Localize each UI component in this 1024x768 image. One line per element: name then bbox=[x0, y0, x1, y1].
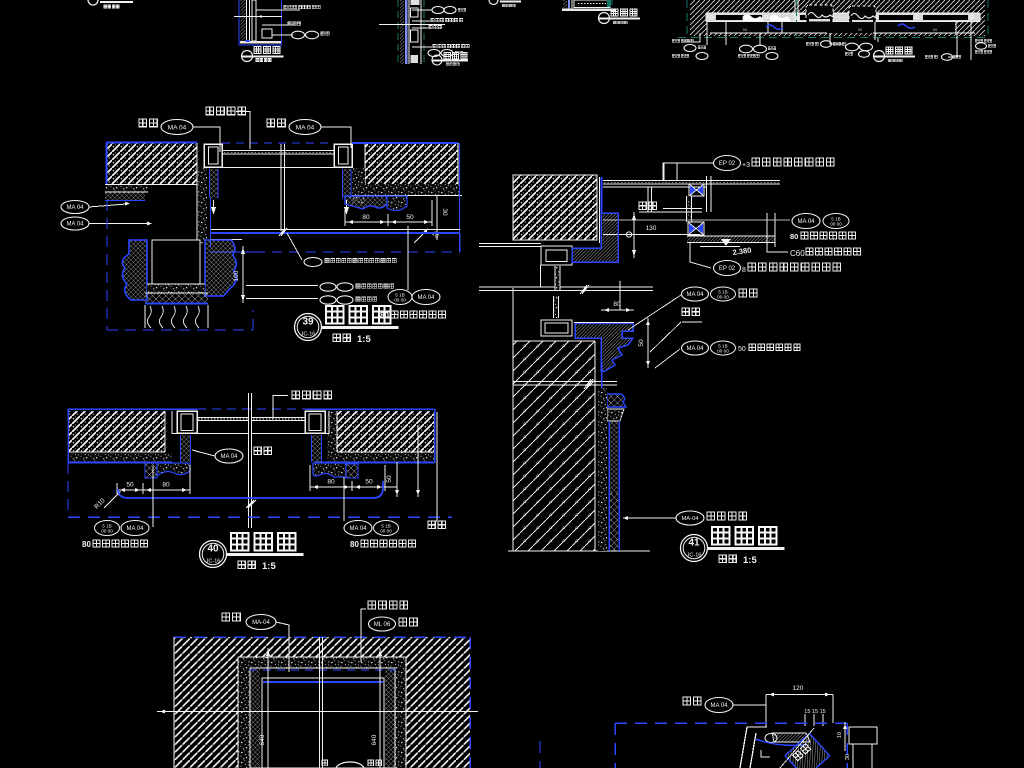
svg-text:MA 04: MA 04 bbox=[710, 703, 728, 709]
svg-text:00 00: 00 00 bbox=[717, 349, 729, 354]
svg-text:MA 04: MA 04 bbox=[66, 205, 84, 211]
svg-text:1:5: 1:5 bbox=[357, 334, 371, 345]
svg-text:00 00: 00 00 bbox=[830, 222, 842, 227]
svg-text:1:5: 1:5 bbox=[743, 555, 757, 566]
svg-text:80: 80 bbox=[790, 232, 798, 241]
svg-text:EP 02: EP 02 bbox=[719, 266, 736, 272]
svg-text:8: 8 bbox=[742, 267, 746, 274]
svg-text:50: 50 bbox=[933, 27, 938, 32]
svg-text:C60: C60 bbox=[790, 249, 805, 258]
svg-text:MA 04: MA 04 bbox=[686, 346, 704, 352]
svg-text:00 00: 00 00 bbox=[101, 529, 113, 534]
svg-text:50: 50 bbox=[365, 479, 373, 486]
svg-text:EP 02: EP 02 bbox=[719, 161, 736, 167]
svg-text:JC-16: JC-16 bbox=[206, 559, 221, 565]
svg-text:MA 04: MA 04 bbox=[168, 124, 187, 131]
svg-text:MA 04: MA 04 bbox=[126, 526, 144, 532]
svg-text:MA-04: MA-04 bbox=[681, 516, 699, 522]
svg-text:30: 30 bbox=[845, 754, 851, 760]
svg-text:80: 80 bbox=[362, 214, 370, 221]
svg-text:120: 120 bbox=[793, 685, 804, 692]
svg-text:MA 04: MA 04 bbox=[349, 526, 367, 532]
svg-text:640: 640 bbox=[371, 734, 378, 745]
svg-text:640: 640 bbox=[259, 734, 266, 745]
svg-text:50: 50 bbox=[858, 27, 863, 32]
svg-text:00 00: 00 00 bbox=[380, 529, 392, 534]
svg-text:JC-16: JC-16 bbox=[687, 553, 702, 559]
svg-text:00 00: 00 00 bbox=[394, 298, 406, 303]
svg-text:MA 04: MA 04 bbox=[66, 222, 84, 228]
svg-text:1:5: 1:5 bbox=[262, 561, 276, 572]
svg-text:ML 06: ML 06 bbox=[374, 622, 391, 628]
svg-text:50: 50 bbox=[406, 214, 414, 221]
svg-text:MA 04: MA 04 bbox=[296, 124, 315, 131]
svg-text:50: 50 bbox=[743, 27, 748, 32]
svg-text:50: 50 bbox=[386, 475, 393, 483]
svg-text:80: 80 bbox=[327, 479, 335, 486]
svg-text:10: 10 bbox=[837, 732, 843, 738]
svg-text:MA-04: MA-04 bbox=[252, 620, 270, 626]
svg-text:50: 50 bbox=[638, 339, 645, 347]
svg-text:40: 40 bbox=[207, 544, 219, 555]
svg-text:15 15 15: 15 15 15 bbox=[804, 709, 825, 715]
svg-text:80: 80 bbox=[82, 540, 91, 549]
svg-text:100: 100 bbox=[233, 270, 240, 281]
svg-text:+3: +3 bbox=[742, 162, 750, 169]
svg-text:MA 04: MA 04 bbox=[220, 454, 238, 460]
svg-text:00 00: 00 00 bbox=[717, 295, 729, 300]
svg-text:30: 30 bbox=[441, 208, 448, 216]
svg-text:50: 50 bbox=[738, 346, 746, 353]
svg-text:80: 80 bbox=[162, 482, 170, 489]
svg-text:50: 50 bbox=[126, 482, 134, 489]
svg-text:41: 41 bbox=[688, 538, 700, 549]
svg-text:80: 80 bbox=[350, 540, 359, 549]
svg-text:JC-16: JC-16 bbox=[301, 332, 316, 338]
svg-text:130: 130 bbox=[646, 225, 657, 232]
svg-text:MA 04: MA 04 bbox=[686, 292, 704, 298]
svg-text:MA 04: MA 04 bbox=[417, 295, 435, 301]
svg-text:MA 04: MA 04 bbox=[797, 219, 815, 225]
svg-text:39: 39 bbox=[302, 317, 314, 328]
